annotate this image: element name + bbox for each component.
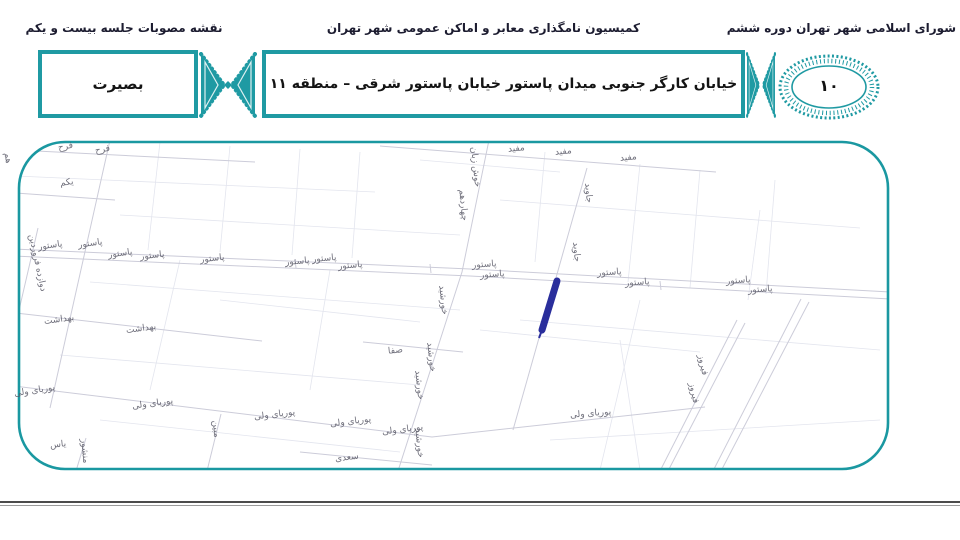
street-label: هم (2, 152, 14, 164)
map-border (19, 142, 888, 469)
document-page: شورای اسلامی شهر تهران دوره ششم کمیسیون … (0, 0, 960, 540)
badge-number: ۱۰ (777, 54, 881, 116)
parcel-lines (16, 142, 880, 470)
ornament-triangles-icon (746, 52, 776, 118)
bottom-divider (0, 501, 960, 506)
ornament-triangles-icon (199, 52, 257, 118)
header-commission-title: کمیسیون نامگذاری معابر و اماکن عمومی شهر… (350, 21, 640, 35)
street-lines (16, 140, 890, 471)
street-naming-title-box: خیابان کارگر جنوبی میدان پاستور خیابان پ… (262, 50, 745, 118)
session-number-badge: ۱۰ (777, 54, 881, 120)
header-council-title: شورای اسلامی شهر تهران دوره ششم (738, 21, 956, 35)
header-session-map-title: نقشه مصوبات جلسه بیست و یکم (18, 21, 230, 35)
map-canvas (16, 139, 891, 472)
approved-name-box: بصیرت (38, 50, 198, 118)
